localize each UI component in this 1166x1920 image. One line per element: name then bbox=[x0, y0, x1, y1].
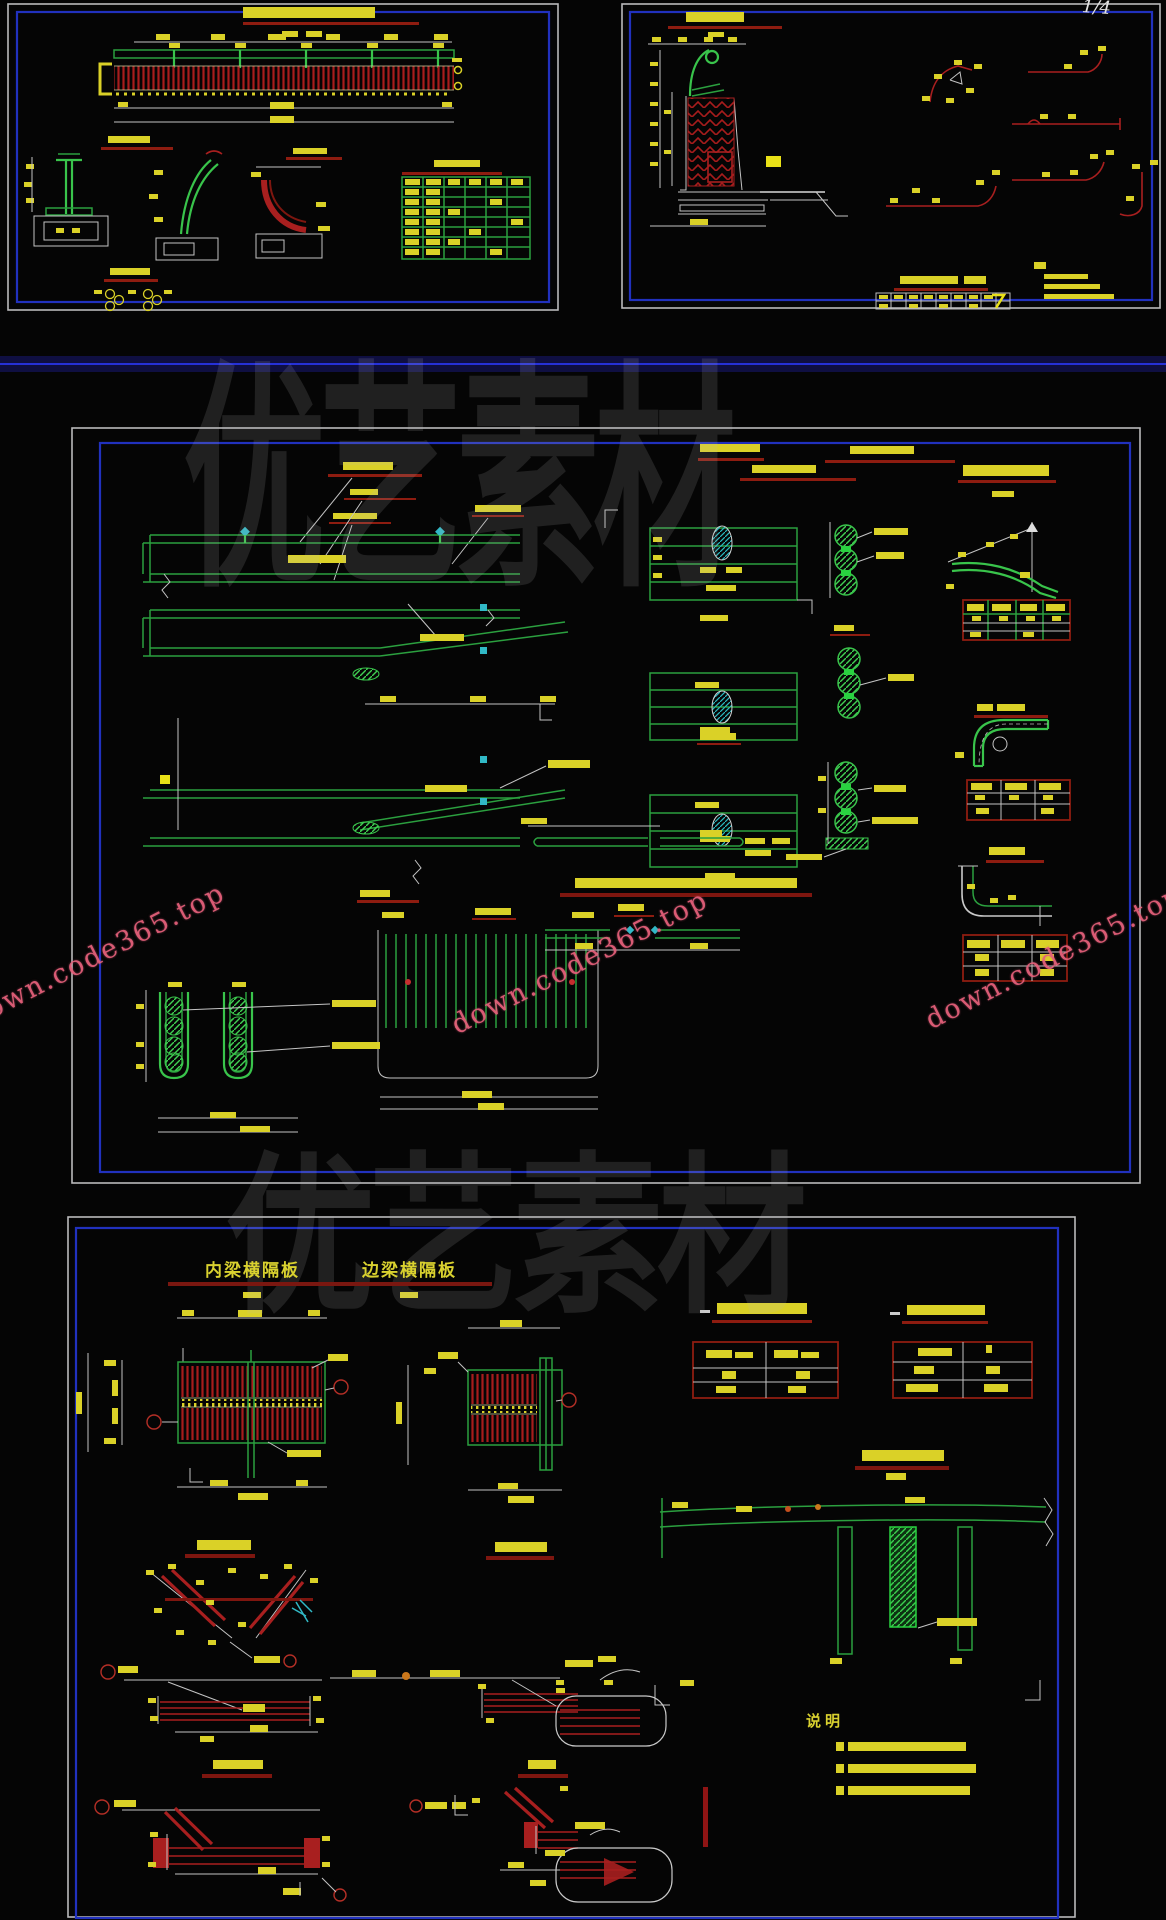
pipe-details bbox=[521, 818, 812, 950]
sheet4-title-marks bbox=[243, 1292, 418, 1298]
barrier-cross-section bbox=[648, 37, 848, 226]
bolt-circle-details bbox=[94, 268, 172, 311]
sheet-beam-arrangement bbox=[0, 352, 1166, 1192]
beam-elevation-3 bbox=[143, 696, 590, 884]
inner-diaphragm-title: 内梁横隔板 bbox=[205, 1256, 300, 1281]
material-table bbox=[402, 160, 530, 259]
duct-plan-comb bbox=[357, 890, 598, 1110]
mid-cross-section bbox=[655, 1450, 1053, 1705]
railing-elbow-detail bbox=[955, 704, 1070, 820]
duct-section-details bbox=[136, 982, 380, 1132]
plate-detail-x2 bbox=[101, 1665, 578, 1742]
sheet-guardrail-elevation bbox=[6, 2, 560, 312]
dimension-table-a bbox=[693, 1303, 838, 1398]
notes-heading: 说明 bbox=[806, 1710, 844, 1731]
guardrail-elevation-drawing bbox=[100, 34, 462, 123]
plank-section-group-1 bbox=[605, 444, 955, 614]
sheet-barrier-details bbox=[620, 0, 1166, 312]
plank-section-group-3 bbox=[650, 733, 918, 879]
flashing-detail-group bbox=[886, 46, 1158, 216]
sheet4-notes bbox=[703, 1742, 976, 1847]
beam-elevation-1 bbox=[143, 527, 520, 598]
rounded-plate-r2 bbox=[545, 1822, 672, 1902]
plank-section-group-2 bbox=[650, 615, 914, 740]
edge-diaphragm-elevation bbox=[396, 1320, 576, 1560]
plate-detail-x5 bbox=[410, 1760, 588, 1886]
edge-diaphragm-title-underline bbox=[330, 1282, 492, 1286]
curb-corner-detail bbox=[958, 847, 1067, 981]
edge-diaphragm-title: 边梁横隔板 bbox=[362, 1256, 457, 1281]
inner-diaphragm-title-underline bbox=[168, 1282, 335, 1286]
railing-arc-detail bbox=[946, 465, 1070, 640]
inner-diaphragm-elevation bbox=[76, 1310, 348, 1558]
page-fraction-label: 1/4 bbox=[1081, 0, 1111, 19]
dimension-table-b bbox=[890, 1305, 1032, 1398]
brace-detail-x1 bbox=[146, 1564, 318, 1667]
rounded-plate-r1 bbox=[556, 1656, 666, 1746]
sheet2-title bbox=[668, 12, 782, 37]
beam-elevation-2 bbox=[143, 604, 568, 680]
sheet-diaphragm-details bbox=[0, 1210, 1166, 1920]
sheet2-notes bbox=[1034, 262, 1114, 299]
sheet2-bottom-table bbox=[876, 276, 1010, 309]
plate-detail-x3 bbox=[95, 1760, 346, 1901]
post-section-details bbox=[24, 136, 342, 260]
cad-screenshot-page: 优艺素材 优艺素材 bbox=[0, 0, 1166, 1920]
